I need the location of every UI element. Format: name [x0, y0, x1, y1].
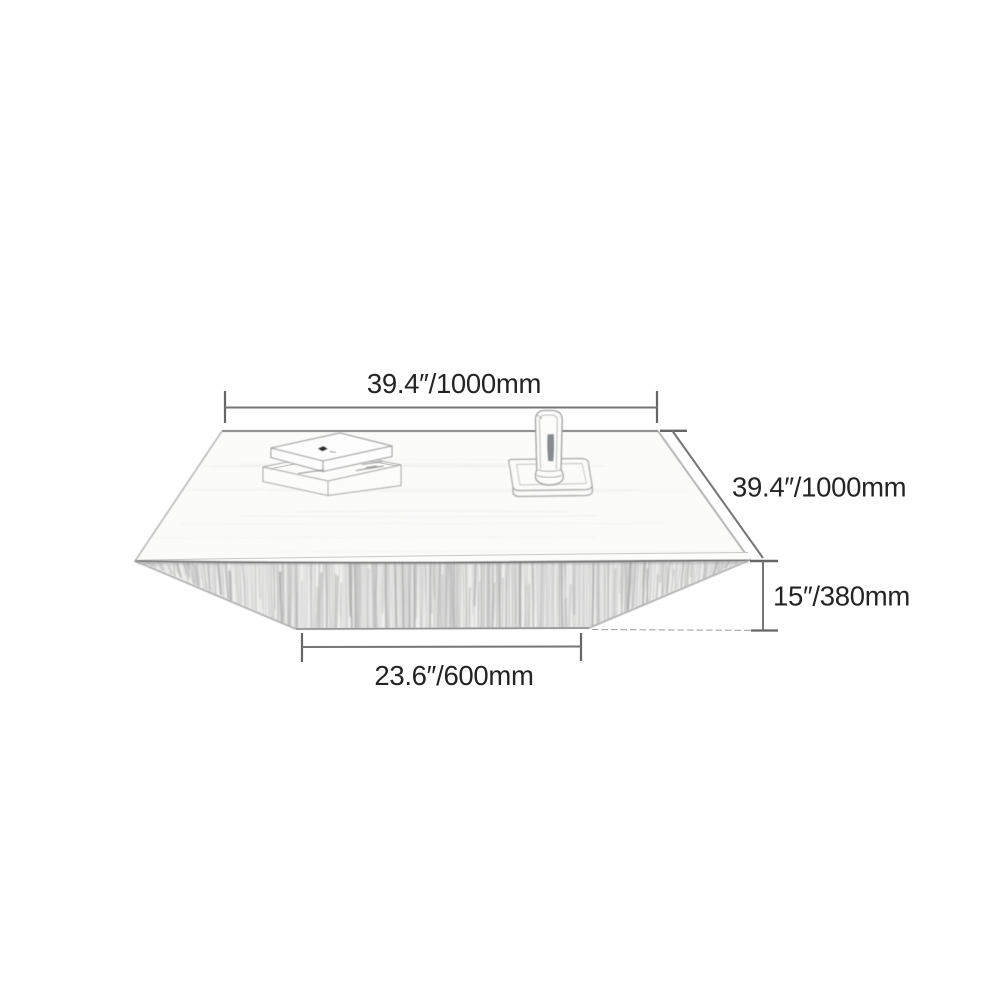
svg-text:15″/380mm: 15″/380mm — [773, 581, 910, 612]
svg-text:39.4″/1000mm: 39.4″/1000mm — [367, 368, 541, 399]
svg-text:39.4″/1000mm: 39.4″/1000mm — [732, 472, 906, 503]
svg-text:23.6″/600mm: 23.6″/600mm — [374, 660, 533, 691]
